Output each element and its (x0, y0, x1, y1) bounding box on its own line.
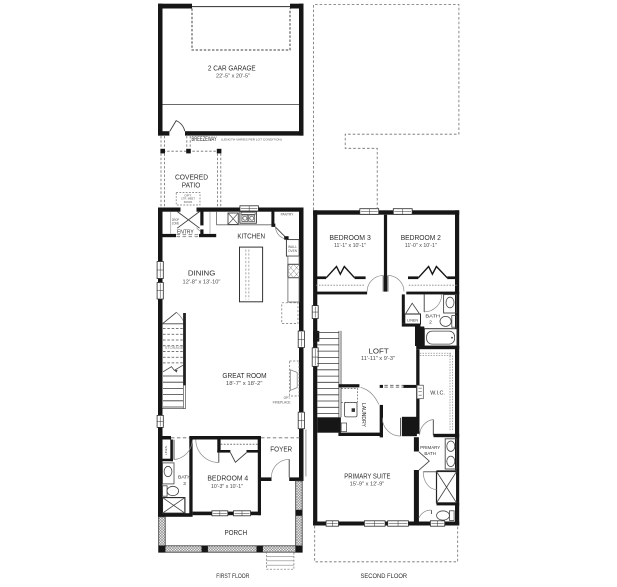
svg-text:ENTRY: ENTRY (177, 229, 194, 235)
svg-text:FOYER: FOYER (270, 446, 292, 453)
svg-text:2: 2 (429, 320, 432, 325)
svg-text:BEDROOM 3: BEDROOM 3 (329, 233, 371, 242)
svg-text:2 CAR GARAGE: 2 CAR GARAGE (208, 65, 256, 72)
svg-text:15'-9" x 12'-9": 15'-9" x 12'-9" (350, 482, 385, 488)
svg-text:STORAGE: STORAGE (165, 345, 184, 350)
svg-text:11'-1" x 10'-1": 11'-1" x 10'-1" (334, 243, 366, 249)
svg-text:LAUNDRY: LAUNDRY (360, 403, 366, 428)
svg-text:11'-0" x 10'-1": 11'-0" x 10'-1" (405, 243, 437, 249)
svg-text:LINEN: LINEN (164, 446, 168, 455)
svg-text:BATH: BATH (424, 451, 436, 456)
svg-text:11'-11" x 9'-3": 11'-11" x 9'-3" (361, 356, 395, 362)
svg-text:BREEZEWAY: BREEZEWAY (192, 137, 217, 143)
svg-text:W.I.C.: W.I.C. (430, 391, 445, 397)
svg-text:(LENGTH VARIES PER LOT CONDITI: (LENGTH VARIES PER LOT CONDITION) (221, 137, 281, 141)
svg-text:DINING: DINING (188, 269, 215, 278)
svg-text:PATIO: PATIO (182, 183, 201, 190)
svg-text:LINEN: LINEN (407, 318, 419, 322)
svg-text:PANTRY: PANTRY (281, 212, 294, 216)
svg-text:LOFT: LOFT (369, 346, 389, 355)
svg-text:18'-7" x 18'-2": 18'-7" x 18'-2" (226, 381, 263, 387)
svg-text:PRIMARY: PRIMARY (420, 445, 440, 450)
svg-text:3: 3 (183, 481, 186, 486)
svg-text:PORCH: PORCH (224, 528, 247, 537)
svg-text:FIREPLACE: FIREPLACE (273, 401, 291, 405)
svg-text:BEDROOM 4: BEDROOM 4 (207, 474, 248, 483)
svg-text:FIRST FLOOR: FIRST FLOOR (216, 573, 249, 580)
svg-text:KITCHEN: KITCHEN (237, 231, 265, 240)
svg-text:BEDROOM 2: BEDROOM 2 (401, 233, 441, 242)
svg-text:ZONE: ZONE (172, 222, 179, 226)
svg-text:BATH: BATH (178, 475, 191, 480)
svg-text:DOOR: DOOR (184, 200, 193, 204)
svg-text:PRIMARY SUITE: PRIMARY SUITE (344, 474, 391, 481)
svg-text:OVEN: OVEN (288, 249, 298, 253)
svg-text:SECOND FLOOR: SECOND FLOOR (360, 573, 407, 580)
svg-text:GREAT ROOM: GREAT ROOM (222, 371, 266, 380)
svg-text:12'-8" x 13'-10": 12'-8" x 13'-10" (183, 280, 221, 286)
svg-text:22'-5" x 20'-5": 22'-5" x 20'-5" (216, 73, 250, 79)
svg-text:BATH: BATH (425, 313, 440, 318)
svg-text:COVERED: COVERED (175, 175, 208, 182)
svg-text:OPT.: OPT. (284, 396, 291, 400)
svg-text:10'-3" x 10'-1": 10'-3" x 10'-1" (211, 484, 243, 490)
